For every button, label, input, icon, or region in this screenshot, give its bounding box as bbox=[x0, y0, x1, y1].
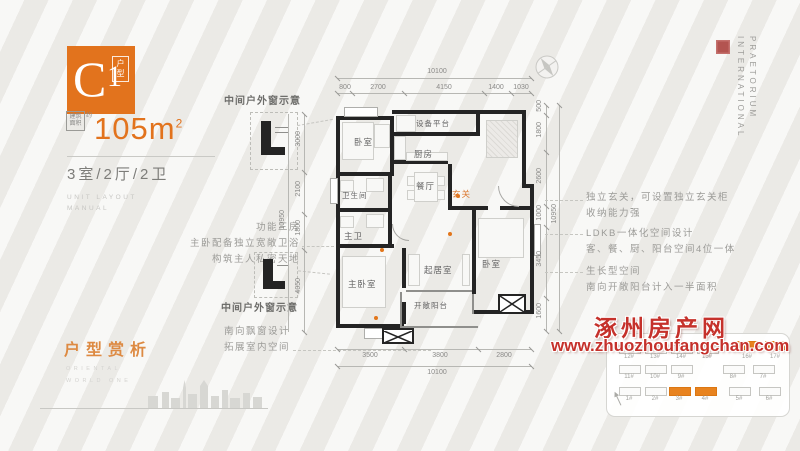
sink bbox=[366, 178, 384, 192]
room-label-bath: 卫生间 bbox=[342, 190, 368, 201]
chair bbox=[437, 176, 445, 186]
equipment-unit bbox=[396, 115, 416, 132]
bay-note-leader bbox=[293, 350, 431, 351]
dim-line-right-overall bbox=[559, 105, 560, 331]
dim-top-seg: 800 bbox=[339, 84, 351, 91]
wall-segment bbox=[336, 244, 394, 248]
bay-window-note: 南向飘窗设计 拓展室内空间 bbox=[140, 324, 290, 356]
site-compass-icon bbox=[611, 390, 625, 413]
chair bbox=[407, 176, 415, 186]
right-note-leader bbox=[545, 234, 583, 235]
chair bbox=[437, 190, 445, 200]
compass-icon bbox=[532, 52, 562, 87]
building bbox=[671, 365, 693, 374]
building-label: 6# bbox=[766, 396, 773, 402]
dim-top-seg: 4150 bbox=[436, 84, 452, 91]
dim-bottom-seg: 2800 bbox=[496, 352, 512, 359]
watermark-url: www.zhuozhoufangchan.com bbox=[551, 336, 789, 356]
dim-right-seg: 3450 bbox=[536, 251, 543, 267]
building bbox=[723, 365, 745, 374]
dim-right-seg: 2600 bbox=[536, 168, 543, 184]
right-note-leader bbox=[545, 272, 583, 273]
area-box-label: 建筑面积 bbox=[66, 111, 85, 131]
header-subtitle-1: UNIT LAYOUT bbox=[67, 194, 137, 201]
wall-segment bbox=[388, 172, 392, 248]
building-label: 11# bbox=[624, 374, 634, 380]
room-label-bedroom-right: 卧室 bbox=[482, 258, 501, 270]
building bbox=[645, 387, 667, 396]
floor-plan: 卧室 设备平台 厨房 餐厅 玄关 卫生间 主卫 主卧室 起居室 开敞阳台 卧室 bbox=[330, 106, 540, 346]
dim-bottom-overall: 10100 bbox=[427, 369, 446, 376]
wall-segment bbox=[336, 172, 394, 176]
building-label: 2# bbox=[652, 396, 659, 402]
wall-segment bbox=[402, 302, 406, 324]
area-approx: 约 bbox=[86, 110, 92, 119]
wall-segment bbox=[402, 248, 406, 288]
tv-cabinet bbox=[462, 254, 470, 286]
dim-right-seg: 1800 bbox=[536, 122, 543, 138]
room-label-master-bath: 主卫 bbox=[344, 230, 363, 242]
window-note-top: 中间户外窗示意 bbox=[224, 92, 301, 107]
dim-line-left-overall bbox=[288, 114, 289, 332]
window-detail-top bbox=[250, 112, 298, 170]
wall-segment bbox=[392, 110, 526, 114]
building bbox=[753, 365, 775, 374]
wall-segment bbox=[448, 206, 488, 210]
wall-segment bbox=[522, 110, 526, 188]
dim-bottom-seg: 3800 bbox=[432, 352, 448, 359]
building bbox=[619, 365, 641, 374]
wardrobe bbox=[374, 124, 390, 148]
layout-spec: 3室/2厅/2卫 bbox=[67, 163, 169, 184]
room-label-bedroom-top: 卧室 bbox=[354, 136, 373, 148]
dim-left-seg: 3000 bbox=[295, 131, 302, 147]
door-marker bbox=[374, 316, 378, 320]
building-highlighted bbox=[669, 387, 691, 396]
dim-top-overall: 10100 bbox=[427, 68, 446, 75]
building-label: 3# bbox=[676, 396, 683, 402]
dim-left-overall: 10950 bbox=[279, 210, 286, 229]
seal-icon bbox=[716, 40, 730, 54]
window-bottom-leader bbox=[298, 270, 330, 274]
city-skyline bbox=[40, 378, 268, 409]
building-highlighted bbox=[695, 387, 717, 396]
building-label: 4# bbox=[702, 396, 709, 402]
right-note-1: 独立玄关，可设置独立玄关柜 收纳能力强 bbox=[586, 190, 729, 222]
building-label: 5# bbox=[736, 396, 743, 402]
dim-line-top-overall bbox=[337, 78, 532, 79]
window-detail-bottom bbox=[254, 252, 298, 298]
area-row: 建筑面积约105m2 bbox=[66, 110, 183, 147]
building bbox=[759, 387, 781, 396]
unit-letter: C bbox=[73, 48, 106, 110]
header-divider bbox=[67, 156, 215, 157]
door-marker bbox=[380, 248, 384, 252]
bay-window bbox=[344, 107, 378, 117]
building-label: 1# bbox=[626, 396, 633, 402]
building-label: 8# bbox=[730, 374, 737, 380]
bed bbox=[478, 218, 524, 258]
room-label-living: 起居室 bbox=[424, 264, 453, 276]
shaft-box bbox=[382, 328, 414, 344]
chair bbox=[407, 190, 415, 200]
window-note-bottom: 中间户外窗示意 bbox=[221, 299, 298, 314]
dim-left-seg: 1800 bbox=[295, 220, 302, 236]
brand-word-1: PRAETORIUM bbox=[748, 36, 757, 119]
header-subtitle-2: MANUAL bbox=[67, 205, 109, 212]
building-label: 10# bbox=[650, 374, 660, 380]
dim-right-seg: 1600 bbox=[536, 303, 543, 319]
toilet bbox=[340, 216, 354, 228]
wall-segment bbox=[476, 110, 480, 134]
wall-segment bbox=[472, 206, 476, 294]
wall-segment bbox=[448, 164, 452, 208]
kitchen-counter bbox=[394, 136, 406, 160]
dim-line-left-segments bbox=[304, 114, 305, 332]
room-label-entry: 玄关 bbox=[452, 188, 471, 200]
window-top-leader bbox=[297, 119, 333, 126]
section-subtitle-1: ORIENTAL bbox=[66, 366, 121, 372]
right-note-2: LDKB一体化空间设计 客、餐、厨、阳台空间4位一体 bbox=[586, 226, 736, 258]
door-arc bbox=[392, 224, 409, 241]
shower bbox=[366, 214, 384, 228]
shaft-box bbox=[498, 294, 526, 314]
room-label-master-bedroom: 主卧室 bbox=[348, 278, 377, 290]
skyline-graphic bbox=[40, 378, 268, 408]
area-value: 105m2 bbox=[94, 111, 183, 147]
room-label-kitchen: 厨房 bbox=[414, 148, 433, 160]
balcony-wall bbox=[400, 292, 402, 328]
dim-line-bottom-overall bbox=[337, 366, 532, 367]
dim-line-top-segments bbox=[337, 93, 532, 94]
door-arc bbox=[498, 186, 519, 207]
stair-hatch bbox=[486, 120, 518, 158]
bay-window bbox=[330, 178, 338, 204]
dim-bottom-seg: 3500 bbox=[362, 352, 378, 359]
dim-left-seg: 4050 bbox=[295, 278, 302, 294]
dim-top-seg: 1030 bbox=[513, 84, 529, 91]
unit-tag: 户型 bbox=[112, 56, 129, 82]
building-label: 9# bbox=[678, 374, 685, 380]
dim-right-seg: 1000 bbox=[536, 205, 543, 221]
dim-right-seg: 500 bbox=[536, 100, 543, 112]
dim-top-seg: 2700 bbox=[370, 84, 386, 91]
room-label-equipment: 设备平台 bbox=[416, 118, 450, 129]
right-note-leader bbox=[545, 200, 583, 201]
brand-word-2: INTERNATIONAL bbox=[736, 36, 745, 138]
section-title: 户型赏析 bbox=[64, 336, 152, 360]
balcony-slider bbox=[406, 290, 472, 292]
dim-left-seg: 2100 bbox=[295, 181, 302, 197]
balcony-wall bbox=[472, 294, 474, 314]
dim-right-overall: 10950 bbox=[551, 204, 558, 223]
building-label: 7# bbox=[760, 374, 767, 380]
room-label-balcony: 开敞阳台 bbox=[414, 300, 448, 311]
dim-top-seg: 1400 bbox=[488, 84, 504, 91]
right-note-3: 生长型空间 南向开敞阳台计入一半面积 bbox=[586, 264, 718, 296]
sofa bbox=[408, 254, 420, 286]
dim-line-bottom-segments bbox=[337, 349, 532, 350]
door-marker bbox=[448, 232, 452, 236]
unit-logo: C 1 户型 bbox=[67, 46, 135, 114]
building bbox=[645, 365, 667, 374]
wall-segment bbox=[336, 208, 390, 212]
room-label-dining: 餐厅 bbox=[416, 180, 435, 192]
building bbox=[729, 387, 751, 396]
